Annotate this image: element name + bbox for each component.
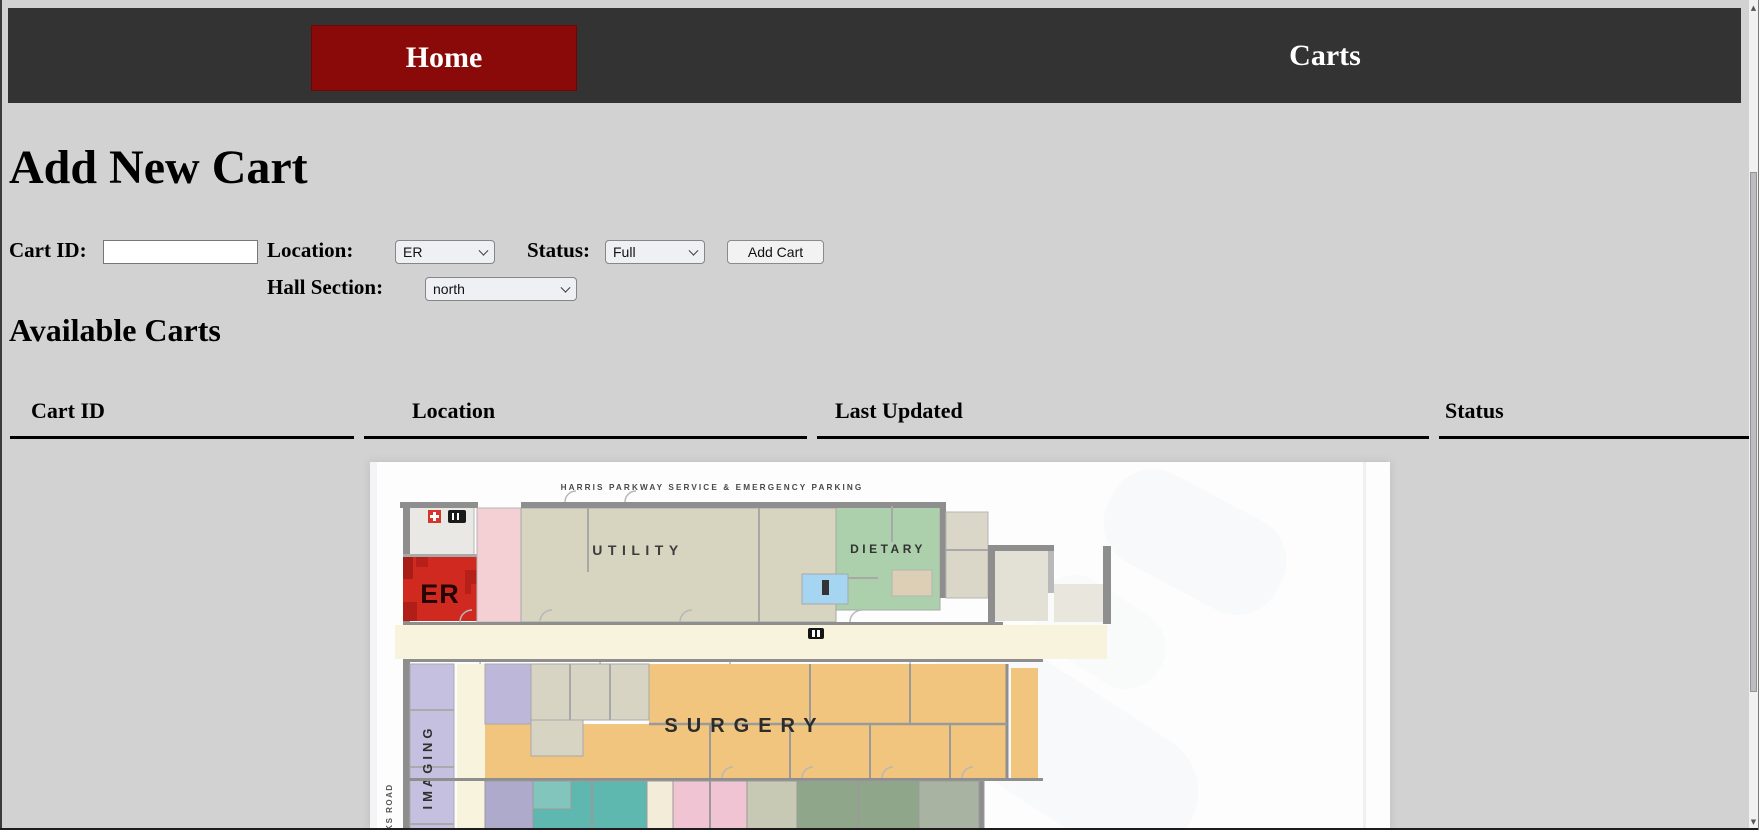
label-dietary: DIETARY — [850, 542, 926, 556]
location-select[interactable]: ER — [395, 240, 495, 264]
label-imaging: IMAGING — [420, 724, 435, 809]
rooms-bottom — [485, 781, 984, 830]
top-navigation-bar: Home Carts — [8, 8, 1741, 103]
page-title: Add New Cart — [9, 140, 308, 195]
corridor-vertical — [457, 664, 485, 830]
hall-section-select[interactable]: north — [425, 277, 577, 301]
scrollbar-up-arrow[interactable]: ▲ — [1749, 0, 1758, 16]
hall-section-select-wrap: north — [425, 277, 577, 301]
room-dietary — [832, 502, 946, 610]
window-edge — [0, 0, 2, 830]
room-blue — [802, 574, 848, 604]
nav-carts-link[interactable]: Carts — [1245, 8, 1405, 103]
label-road: KS ROAD — [385, 783, 394, 830]
cart-id-label: Cart ID: — [9, 238, 87, 263]
status-select[interactable]: Full — [605, 240, 705, 264]
room-pink — [477, 508, 521, 622]
column-header-last-updated: Last Updated — [817, 398, 1429, 439]
add-cart-button[interactable]: Add Cart — [727, 240, 824, 264]
nav-home-button[interactable]: Home — [311, 25, 577, 91]
corridor — [395, 625, 1107, 659]
status-label: Status: — [527, 238, 590, 263]
label-er: ER — [420, 579, 460, 609]
floor-plan-graphic: HARRIS PARKWAY SERVICE & EMERGENCY PARKI… — [370, 462, 1390, 830]
location-label: Location: — [267, 238, 353, 263]
emergency-sign-icon — [448, 510, 466, 523]
available-carts-heading: Available Carts — [9, 312, 221, 349]
status-select-wrap: Full — [605, 240, 705, 264]
column-header-location: Location — [364, 398, 807, 439]
hospital-floor-plan-image: HARRIS PARKWAY SERVICE & EMERGENCY PARKI… — [370, 462, 1390, 830]
wall — [403, 659, 1043, 662]
map-title: HARRIS PARKWAY SERVICE & EMERGENCY PARKI… — [561, 483, 864, 492]
scrollbar-thumb[interactable] — [1750, 172, 1757, 692]
carts-table-header: Cart ID Location Last Updated Status — [10, 398, 1749, 439]
wall — [403, 622, 1003, 625]
location-select-wrap: ER — [395, 240, 495, 264]
label-utility: UTILITY — [592, 542, 683, 558]
column-header-cart-id: Cart ID — [10, 398, 354, 439]
hall-section-label: Hall Section: — [267, 275, 383, 300]
red-cross-icon — [428, 510, 441, 523]
scrollbar-track[interactable]: ▲ ▼ — [1749, 0, 1758, 830]
browser-viewport: Home Carts Add New Cart Cart ID: Locatio… — [0, 0, 1759, 830]
elevator-icon — [808, 628, 824, 639]
column-header-status: Status — [1439, 398, 1749, 439]
label-surgery: SURGERY — [664, 715, 825, 737]
cart-id-input[interactable] — [103, 240, 258, 264]
room-utility — [521, 502, 841, 622]
